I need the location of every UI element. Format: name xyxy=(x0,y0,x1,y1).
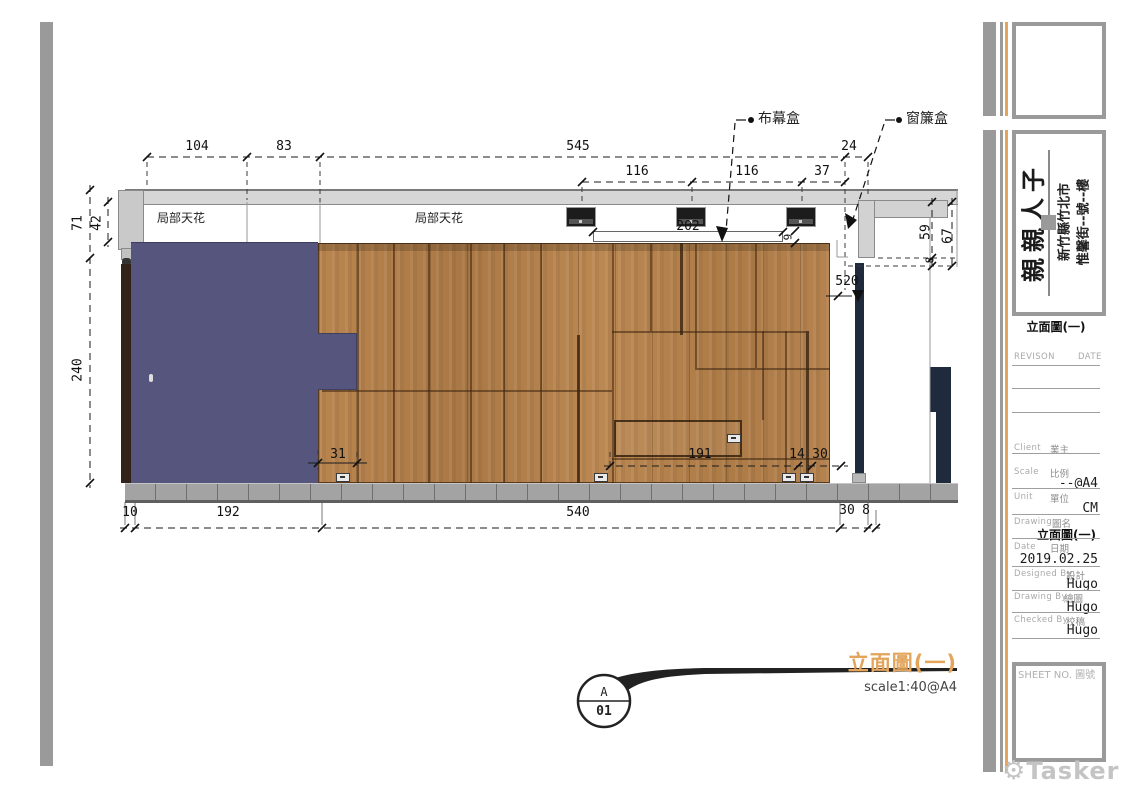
dim-59: 59 xyxy=(920,224,933,240)
dim-9: 9 xyxy=(783,234,794,241)
drawing-element xyxy=(1012,412,1100,413)
checked-by-label-en: Checked By xyxy=(1014,615,1068,625)
drawing-element xyxy=(1012,638,1100,639)
dim-104: 104 xyxy=(185,140,208,153)
dim-30-bottom: 30 xyxy=(839,504,855,517)
dim-37: 37 xyxy=(814,165,830,178)
dim-24: 24 xyxy=(841,140,857,153)
drawing-element xyxy=(1012,590,1100,591)
drawing-element xyxy=(1012,566,1100,567)
drawn-by-label-en: Drawing By xyxy=(1014,592,1067,602)
watermark-text: Tasker xyxy=(1026,757,1119,785)
dim-8-bottom: 8 xyxy=(862,504,870,517)
unit-label-zh: 單位 xyxy=(1050,491,1069,505)
dim-8-right: 8 xyxy=(925,257,936,264)
drawing-element xyxy=(1012,365,1100,366)
label-curtain-box: 窗簾盒 xyxy=(906,112,948,126)
title-block-top-box xyxy=(1012,22,1106,119)
client-label-en: Client xyxy=(1014,443,1041,453)
drawing-element xyxy=(1012,453,1100,454)
dim-116-a: 116 xyxy=(625,165,648,178)
dim-116-b: 116 xyxy=(735,165,758,178)
date-value: 2019.02.25 xyxy=(1020,552,1098,567)
drawing-element xyxy=(1012,612,1100,613)
drawing-element xyxy=(1012,538,1100,539)
dim-545: 545 xyxy=(566,140,589,153)
date-label-en: Date xyxy=(1014,542,1036,552)
dim-67: 67 xyxy=(942,228,955,244)
bubble-detail-letter: A xyxy=(600,685,607,699)
dim-240: 240 xyxy=(72,358,85,381)
drawing-element xyxy=(1012,488,1100,489)
drawing-element xyxy=(1012,514,1100,515)
checked-by-value: Hugo xyxy=(1067,623,1098,638)
project-address-line1: 新竹縣竹北市 xyxy=(1054,183,1073,261)
dim-540: 540 xyxy=(566,506,589,519)
dim-42: 42 xyxy=(91,215,104,231)
title-block-sheet-label: 立面圖(一) xyxy=(1027,318,1086,335)
drawing-element xyxy=(1012,388,1100,389)
scale-label-en: Scale xyxy=(1014,467,1039,477)
drawing-scale: scale1:40@A4 xyxy=(864,680,957,695)
dim-10: 10 xyxy=(122,506,138,519)
dim-192: 192 xyxy=(216,506,239,519)
dim-83: 83 xyxy=(276,140,292,153)
project-address-line2: 惟馨街--號--樓 xyxy=(1073,179,1092,266)
watermark: ⚙ Tasker xyxy=(1002,756,1120,786)
dim-30-mid: 30 xyxy=(812,448,828,461)
label-partial-ceiling-left: 局部天花 xyxy=(157,212,205,224)
dim-191: 191 xyxy=(688,448,711,461)
bubble-sheet-number: 01 xyxy=(596,704,612,719)
elevation-drawing-sheet: 104 83 545 24 116 116 37 202 9 71 42 240… xyxy=(0,0,1122,793)
dim-31: 31 xyxy=(330,448,346,461)
drawing-title: 立面圖(一) xyxy=(848,647,957,677)
dim-14: 14 xyxy=(789,448,805,461)
revision-header: REVISON xyxy=(1014,352,1055,362)
date-header: DATE xyxy=(1078,352,1102,362)
unit-label-en: Unit xyxy=(1014,492,1033,502)
gear-icon: ⚙ xyxy=(1002,756,1025,786)
dim-202: 202 xyxy=(676,220,699,233)
dim-520: 520 xyxy=(835,275,858,288)
designed-by-label-en: Designed By xyxy=(1014,569,1072,579)
sheet-no-label: SHEET NO. 圖號 xyxy=(1018,666,1095,681)
dim-71: 71 xyxy=(72,215,85,231)
label-curtain-screen-box: 布幕盒 xyxy=(758,112,800,126)
label-partial-ceiling-right: 局部天花 xyxy=(415,212,463,224)
